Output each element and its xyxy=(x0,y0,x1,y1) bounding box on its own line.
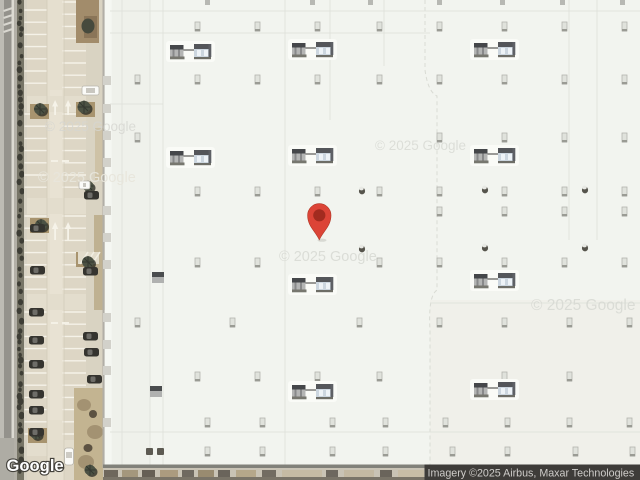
svg-text:© 2025 Google: © 2025 Google xyxy=(279,249,377,265)
svg-text:© 2025 Google: © 2025 Google xyxy=(375,138,466,153)
svg-text:Imagery ©2025 Airbus, Maxar Te: Imagery ©2025 Airbus, Maxar Technologies xyxy=(428,467,635,479)
svg-text:Google: Google xyxy=(7,456,64,475)
svg-text:© 2025 Google: © 2025 Google xyxy=(45,119,136,134)
svg-text:© 2025 Google: © 2025 Google xyxy=(531,297,636,314)
svg-text:© 2025 Google: © 2025 Google xyxy=(38,170,136,186)
